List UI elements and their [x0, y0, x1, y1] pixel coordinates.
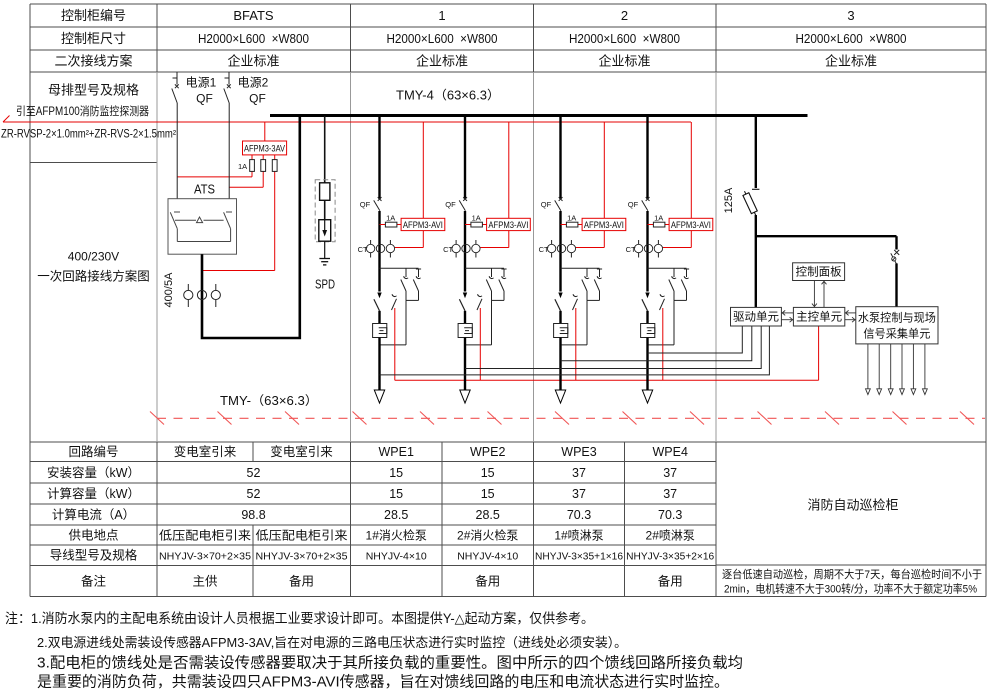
svg-text:逐台低速自动巡检，周期不大于7天，每台巡检时间不小于: 逐台低速自动巡检，周期不大于7天，每台巡检时间不小于	[722, 567, 982, 581]
svg-text:供电地点: 供电地点	[68, 529, 118, 543]
svg-text:28.5: 28.5	[476, 508, 500, 522]
svg-text:37: 37	[572, 466, 586, 480]
svg-text:3: 3	[847, 8, 854, 23]
svg-text:52: 52	[247, 466, 261, 480]
svg-text:125A: 125A	[723, 187, 735, 213]
svg-text:是重要的消防负荷，共需装设四只AFPM3-AVI传感器，旨在: 是重要的消防负荷，共需装设四只AFPM3-AVI传感器，旨在对馈线回路的电压和电…	[37, 674, 729, 691]
svg-text:H2000×L600 ×W800: H2000×L600 ×W800	[387, 31, 498, 46]
svg-text:2#消火检泵: 2#消火检泵	[457, 528, 518, 543]
svg-text:ATS: ATS	[194, 183, 215, 197]
svg-text:NHYJV-3×70+2×35: NHYJV-3×70+2×35	[159, 551, 251, 563]
svg-text:一次回路接线方案图: 一次回路接线方案图	[37, 269, 150, 284]
svg-text:备用: 备用	[475, 575, 500, 589]
svg-text:H2000×L600 ×W800: H2000×L600 ×W800	[198, 31, 309, 46]
svg-text:企业标准: 企业标准	[598, 54, 650, 69]
svg-text:400/230V: 400/230V	[68, 250, 119, 264]
svg-text:2#喷淋泵: 2#喷淋泵	[646, 529, 695, 543]
svg-text:WPE2: WPE2	[470, 445, 505, 459]
svg-text:37: 37	[663, 466, 677, 480]
svg-text:备用: 备用	[289, 575, 314, 589]
svg-text:37: 37	[572, 487, 586, 501]
svg-text:NHYJV-3×35+1×16: NHYJV-3×35+1×16	[535, 552, 623, 563]
svg-text:2: 2	[621, 8, 628, 23]
svg-text:70.3: 70.3	[567, 508, 591, 522]
svg-text:信号采集单元: 信号采集单元	[863, 327, 930, 341]
svg-text:控制柜尺寸: 控制柜尺寸	[61, 31, 126, 46]
svg-text:TMY-4（63×6.3）: TMY-4（63×6.3）	[396, 89, 500, 103]
svg-text:NHYJV-4×10: NHYJV-4×10	[366, 551, 427, 563]
svg-text:电源1: 电源1	[186, 76, 217, 90]
svg-text:3.配电柜的馈线处是否需装设传感器要取决于其所接负载的重要性: 3.配电柜的馈线处是否需装设传感器要取决于其所接负载的重要性。图中所示的四个馈线…	[37, 655, 743, 672]
svg-text:主供: 主供	[192, 575, 217, 589]
svg-text:15: 15	[481, 466, 495, 480]
svg-text:WPE1: WPE1	[378, 445, 413, 459]
svg-text:NHYJV-4×10: NHYJV-4×10	[457, 551, 518, 563]
svg-text:H2000×L600 ×W800: H2000×L600 ×W800	[569, 31, 680, 46]
svg-text:15: 15	[481, 487, 495, 501]
svg-text:变电室引来: 变电室引来	[174, 444, 237, 459]
svg-text:400/5A: 400/5A	[163, 272, 175, 308]
svg-text:28.5: 28.5	[384, 508, 408, 522]
svg-text:15: 15	[389, 466, 403, 480]
svg-text:导线型号及规格: 导线型号及规格	[50, 548, 138, 563]
svg-text:TMY-（63×6.3）: TMY-（63×6.3）	[220, 394, 318, 408]
svg-text:SPD: SPD	[315, 278, 335, 292]
svg-text:备用: 备用	[658, 575, 683, 589]
svg-text:WPE3: WPE3	[561, 445, 596, 459]
svg-text:计算电流（A）: 计算电流（A）	[52, 507, 135, 522]
svg-text:WPE4: WPE4	[652, 445, 687, 459]
svg-text:回路编号: 回路编号	[68, 444, 118, 459]
svg-text:70.3: 70.3	[658, 508, 682, 522]
svg-text:引至AFPM100消防监控探测器: 引至AFPM100消防监控探测器	[16, 104, 149, 118]
svg-text:QF: QF	[196, 92, 213, 106]
svg-text:企业标准: 企业标准	[825, 54, 877, 69]
svg-text:变电室引来: 变电室引来	[270, 444, 333, 459]
svg-text:15: 15	[389, 487, 403, 501]
svg-text:驱动单元: 驱动单元	[733, 311, 779, 324]
svg-text:1#消火检泵: 1#消火检泵	[366, 528, 427, 543]
svg-text:QF: QF	[249, 92, 266, 106]
svg-text:主控单元: 主控单元	[796, 310, 842, 324]
svg-text:低压配电柜引来: 低压配电柜引来	[256, 529, 348, 543]
svg-text:AFPM3-3AV: AFPM3-3AV	[244, 144, 286, 155]
svg-text:二次接线方案: 二次接线方案	[54, 54, 132, 69]
svg-text:2.双电源进线处需装设传感器AFPM3-3AV,旨在对电源的: 2.双电源进线处需装设传感器AFPM3-3AV,旨在对电源的三路电压状态进行实时…	[37, 634, 627, 650]
svg-text:电源2: 电源2	[238, 76, 269, 90]
svg-text:BFATS: BFATS	[233, 8, 274, 23]
svg-text:低压配电柜引来: 低压配电柜引来	[159, 529, 251, 543]
svg-text:NHYJV-3×70+2×35: NHYJV-3×70+2×35	[256, 551, 348, 563]
svg-text:消防自动巡检柜: 消防自动巡检柜	[807, 498, 898, 513]
svg-text:企业标准: 企业标准	[227, 54, 279, 69]
svg-text:H2000×L600 ×W800: H2000×L600 ×W800	[796, 31, 907, 46]
svg-text:1#喷淋泵: 1#喷淋泵	[554, 529, 603, 543]
svg-text:98.8: 98.8	[241, 508, 265, 522]
svg-text:备注: 备注	[81, 574, 107, 589]
svg-text:52: 52	[247, 487, 261, 501]
svg-text:计算容量（kW）: 计算容量（kW）	[47, 486, 140, 501]
svg-text:1: 1	[438, 8, 445, 23]
svg-text:1A: 1A	[238, 162, 247, 171]
svg-text:水泵控制与现场: 水泵控制与现场	[858, 311, 936, 325]
svg-text:2min，电机转速不大于300转/分，功率不大于额定功率5%: 2min，电机转速不大于300转/分，功率不大于额定功率5%	[724, 582, 977, 596]
svg-text:37: 37	[663, 487, 677, 501]
svg-text:NHYJV-3×35+2×16: NHYJV-3×35+2×16	[626, 552, 714, 563]
svg-text:母排型号及规格: 母排型号及规格	[48, 83, 139, 98]
svg-text:控制面板: 控制面板	[796, 265, 842, 279]
svg-text:安装容量（kW）: 安装容量（kW）	[47, 465, 140, 480]
svg-text:注：1.消防水泵内的主配电系统由设计人员根据工业要求设计即可: 注：1.消防水泵内的主配电系统由设计人员根据工业要求设计即可。本图提供Y-△起动…	[5, 610, 594, 626]
svg-text:控制柜编号: 控制柜编号	[61, 8, 126, 23]
svg-text:ZR-RVSP-2×1.0mm²+ZR-RVS-2×1.5m: ZR-RVSP-2×1.0mm²+ZR-RVS-2×1.5mm²	[1, 129, 176, 141]
svg-text:企业标准: 企业标准	[416, 54, 468, 69]
